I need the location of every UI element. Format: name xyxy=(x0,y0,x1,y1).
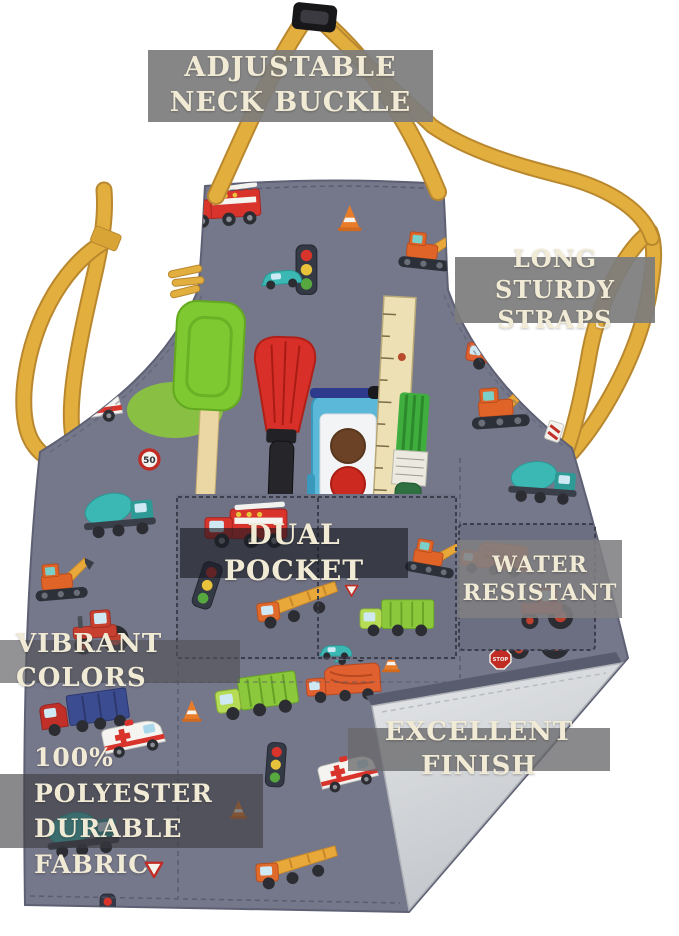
neck-buckle xyxy=(291,2,338,33)
callout-long-sturdy-straps: LONG STURDY STRAPS xyxy=(455,257,655,323)
callout-water-resistant: WATER RESISTANT xyxy=(458,540,622,618)
callout-adjustable-neck-buckle: ADJUSTABLE NECK BUCKLE xyxy=(148,50,433,122)
callout-dual-pocket: DUAL POCKET xyxy=(180,528,408,578)
callout-vibrant-colors: VIBRANT COLORS xyxy=(0,640,240,683)
product-image: STOP 50 xyxy=(0,0,679,936)
callout-excellent-finish: EXCELLENT FINISH xyxy=(348,728,610,771)
callout-polyester-fabric: 100% POLYESTER DURABLE FABRIC xyxy=(0,774,263,848)
